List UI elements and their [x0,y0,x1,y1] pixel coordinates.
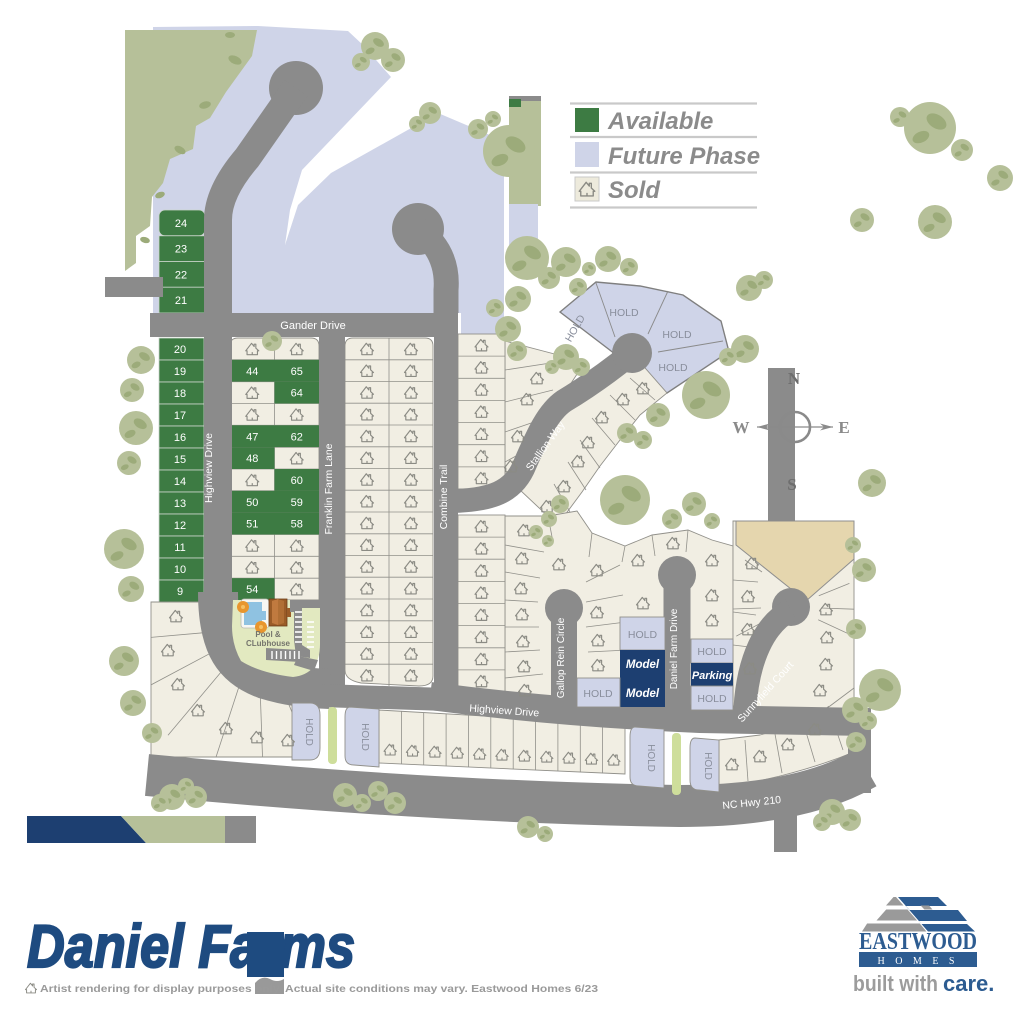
svg-text:Future Phase: Future Phase [608,143,760,170]
svg-text:54: 54 [246,584,258,596]
svg-text:HOLD: HOLD [697,693,727,705]
svg-text:N: N [788,369,801,388]
svg-text:14: 14 [174,476,186,488]
svg-text:11: 11 [174,542,185,554]
svg-text:16: 16 [174,432,186,444]
svg-text:Pool &: Pool & [255,630,281,639]
svg-text:Franklin Farm Lane: Franklin Farm Lane [323,443,335,534]
svg-text:Gander Drive: Gander Drive [280,320,345,332]
svg-text:Gallop Rein Circle: Gallop Rein Circle [556,617,567,698]
svg-text:Artist rendering for display p: Artist rendering for display purposes on… [40,983,598,995]
svg-text:W: W [733,418,750,437]
svg-text:Parking: Parking [692,670,733,682]
svg-text:Model: Model [626,659,660,671]
svg-text:10: 10 [174,564,186,576]
svg-text:12: 12 [174,520,186,532]
svg-text:24: 24 [175,218,187,230]
svg-text:59: 59 [291,497,303,509]
svg-text:21: 21 [175,295,187,307]
svg-text:HOLD: HOLD [697,646,727,658]
svg-text:care.: care. [943,971,994,996]
svg-text:50: 50 [246,497,258,509]
svg-text:Daniel Farm Drive: Daniel Farm Drive [669,608,680,689]
svg-text:HOLD: HOLD [662,329,692,341]
svg-text:13: 13 [174,498,186,510]
svg-text:HOLD: HOLD [628,629,658,641]
svg-text:48: 48 [246,453,258,465]
svg-text:HOLD: HOLD [658,362,688,374]
svg-text:58: 58 [291,519,303,531]
svg-text:23: 23 [175,244,187,256]
svg-text:H O M E S: H O M E S [877,956,958,967]
svg-text:18: 18 [174,388,186,400]
svg-text:22: 22 [175,269,187,281]
svg-text:51: 51 [246,519,258,531]
svg-text:HOLD: HOLD [583,688,613,700]
svg-text:47: 47 [246,431,258,443]
svg-text:17: 17 [174,410,186,422]
svg-text:E: E [838,418,849,437]
svg-text:9: 9 [177,586,183,598]
svg-text:S: S [787,475,796,494]
svg-text:built with: built with [853,971,938,996]
svg-text:HOLD: HOLD [359,723,370,751]
svg-text:Combine Trail: Combine Trail [438,465,450,530]
svg-text:62: 62 [291,431,303,443]
svg-text:Daniel Farms: Daniel Farms [27,913,355,980]
svg-text:HOLD: HOLD [609,307,639,319]
svg-text:19: 19 [174,366,186,378]
svg-text:HOLD: HOLD [702,752,713,780]
svg-text:EASTWOOD: EASTWOOD [859,929,977,955]
svg-text:Available: Available [607,108,713,135]
svg-text:HOLD: HOLD [303,718,314,746]
svg-text:15: 15 [174,454,186,466]
svg-text:64: 64 [291,388,303,400]
svg-text:CLubhouse: CLubhouse [246,639,291,648]
svg-text:44: 44 [246,366,258,378]
svg-text:60: 60 [291,475,303,487]
svg-text:Model: Model [626,688,660,700]
svg-text:HOLD: HOLD [645,744,656,772]
svg-text:Sold: Sold [608,177,661,204]
svg-text:65: 65 [291,366,303,378]
svg-text:20: 20 [174,344,186,356]
svg-text:Highview Drive: Highview Drive [203,433,215,503]
